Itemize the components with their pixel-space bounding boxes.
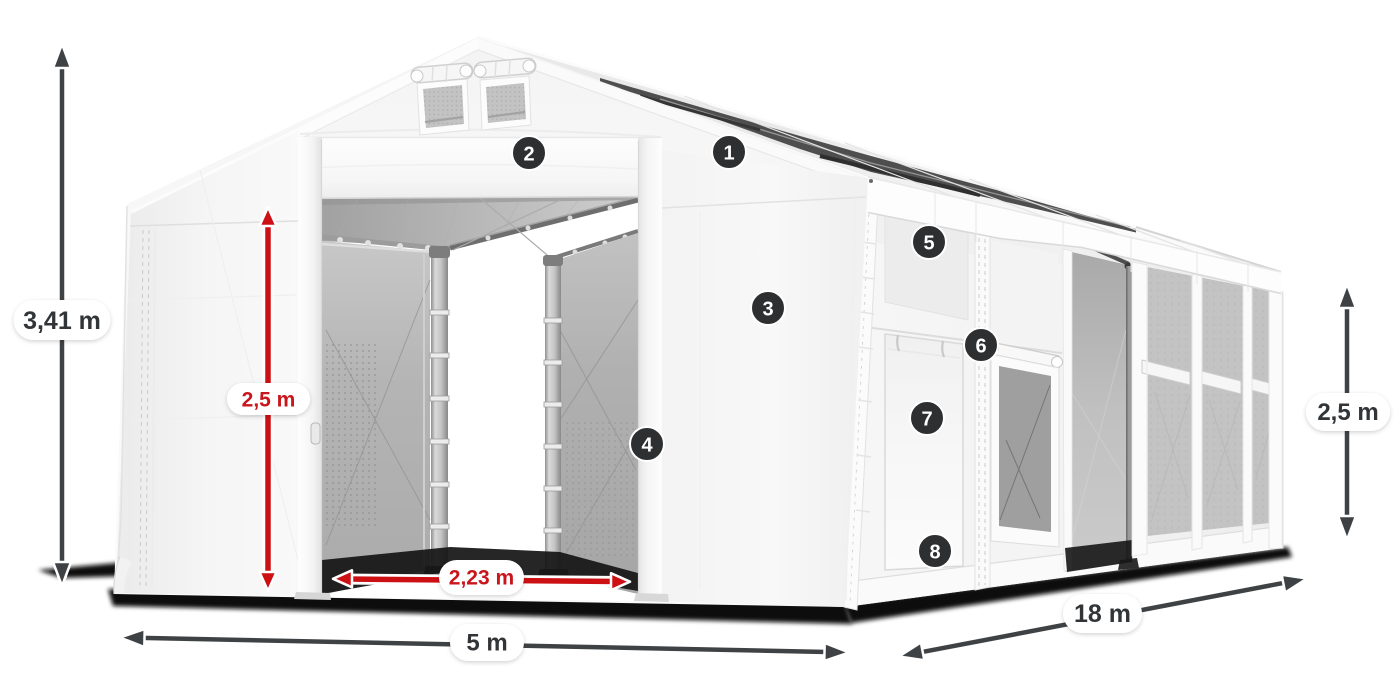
- svg-text:2,23 m: 2,23 m: [449, 567, 514, 590]
- svg-text:3: 3: [762, 299, 773, 321]
- svg-text:1: 1: [723, 143, 734, 165]
- svg-text:2,5 m: 2,5 m: [1317, 399, 1378, 426]
- svg-text:4: 4: [641, 435, 653, 457]
- svg-text:5 m: 5 m: [466, 630, 507, 657]
- svg-text:2: 2: [523, 144, 534, 166]
- svg-text:18 m: 18 m: [1074, 600, 1131, 628]
- svg-text:8: 8: [929, 542, 940, 564]
- svg-text:2,5 m: 2,5 m: [242, 389, 296, 412]
- svg-text:7: 7: [921, 409, 932, 431]
- svg-text:3,41 m: 3,41 m: [23, 307, 101, 335]
- svg-text:6: 6: [975, 336, 986, 358]
- svg-text:5: 5: [923, 233, 934, 255]
